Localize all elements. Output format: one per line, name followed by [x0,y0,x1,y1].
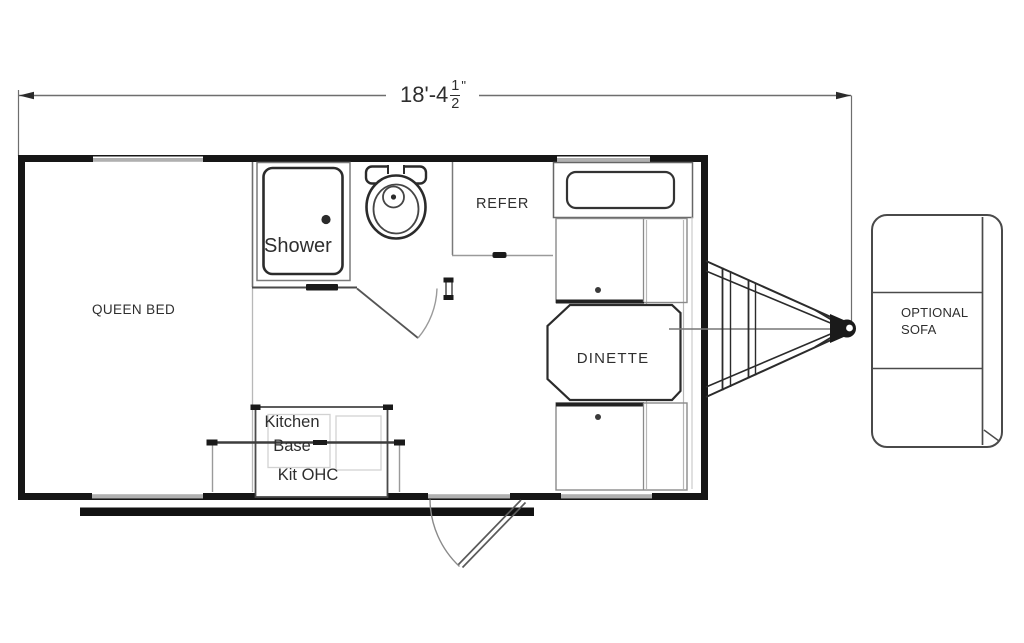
queen-bed-label: QUEEN BED [92,302,175,317]
dimension-arrow-right [836,92,851,99]
bench-button [595,414,601,420]
window-top-bedroom [93,157,203,163]
window-bottom-dinette [561,493,652,498]
dimension-feet-inches: 18'-4 [400,82,448,108]
refer-door-latch [493,252,507,258]
floor-plan: 18'-4 1 2 " QUEEN BED Shower REFER DINET… [0,0,1024,643]
shower-drain [321,215,330,224]
dimension-inch-mark: " [461,78,466,93]
window-bottom-bedroom [92,493,203,498]
dimension-arrow-left [19,92,34,99]
entry-door-opening [428,493,510,498]
kitchen-ohc-label: Kit OHC [242,466,374,485]
optional-sofa-label: OPTIONAL SOFA [901,305,991,338]
bench-button [595,287,601,293]
shower-stall-icon [257,163,350,281]
shower-label: Shower [264,235,332,258]
bumper-rail [80,508,534,517]
dinette-overhead-cabinet [554,163,693,218]
floor-plan-linework [0,0,1024,643]
dimension-label: 18'-4 1 2 " [386,72,480,118]
window-top-dinette [557,157,650,163]
refer-label: REFER [476,196,529,212]
kitchen-base-label: Kitchen Base [226,410,358,458]
toilet-icon [366,164,426,239]
pocket-door [306,284,338,291]
dinette-label: DINETTE [557,350,669,367]
dimension-fraction: 1 2 [450,79,460,111]
